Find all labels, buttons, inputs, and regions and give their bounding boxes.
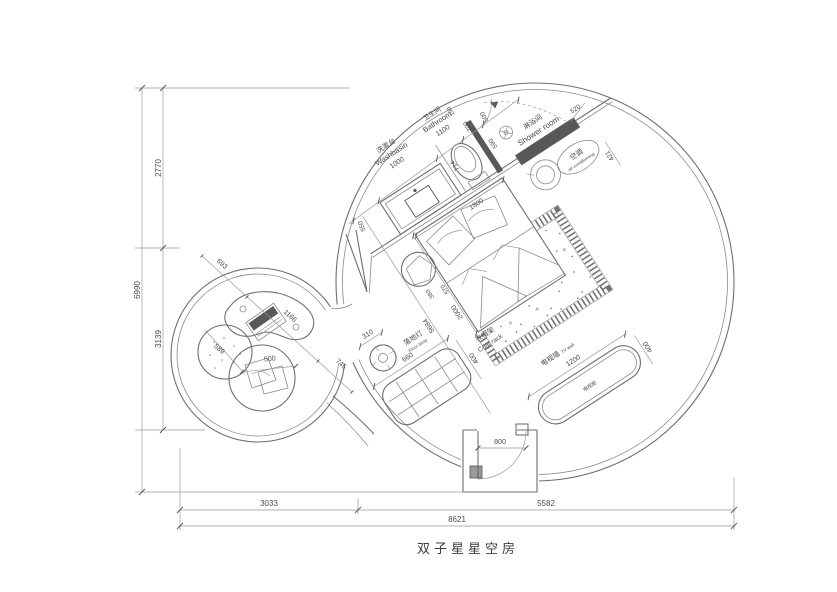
dim-left-top: 2770 [154,159,163,177]
dim-left-total: 6990 [133,281,142,299]
drawing-title: 双子星星空房 [417,541,519,556]
dim-bottom-right: 5582 [537,499,555,508]
dim-bottom-total: 8621 [448,515,466,524]
floor-plan-sheet: 800 [0,0,837,592]
chair-dim: 500 [264,355,276,363]
dim-bottom-left: 3033 [260,499,278,508]
dim-left-bottom: 3139 [154,330,163,348]
door-stop-block [470,466,482,478]
floor-plan-drawing: 800 [0,0,837,592]
entrance-erase [461,423,539,494]
door-width-dim: 800 [494,439,506,446]
paper-background [0,0,837,592]
